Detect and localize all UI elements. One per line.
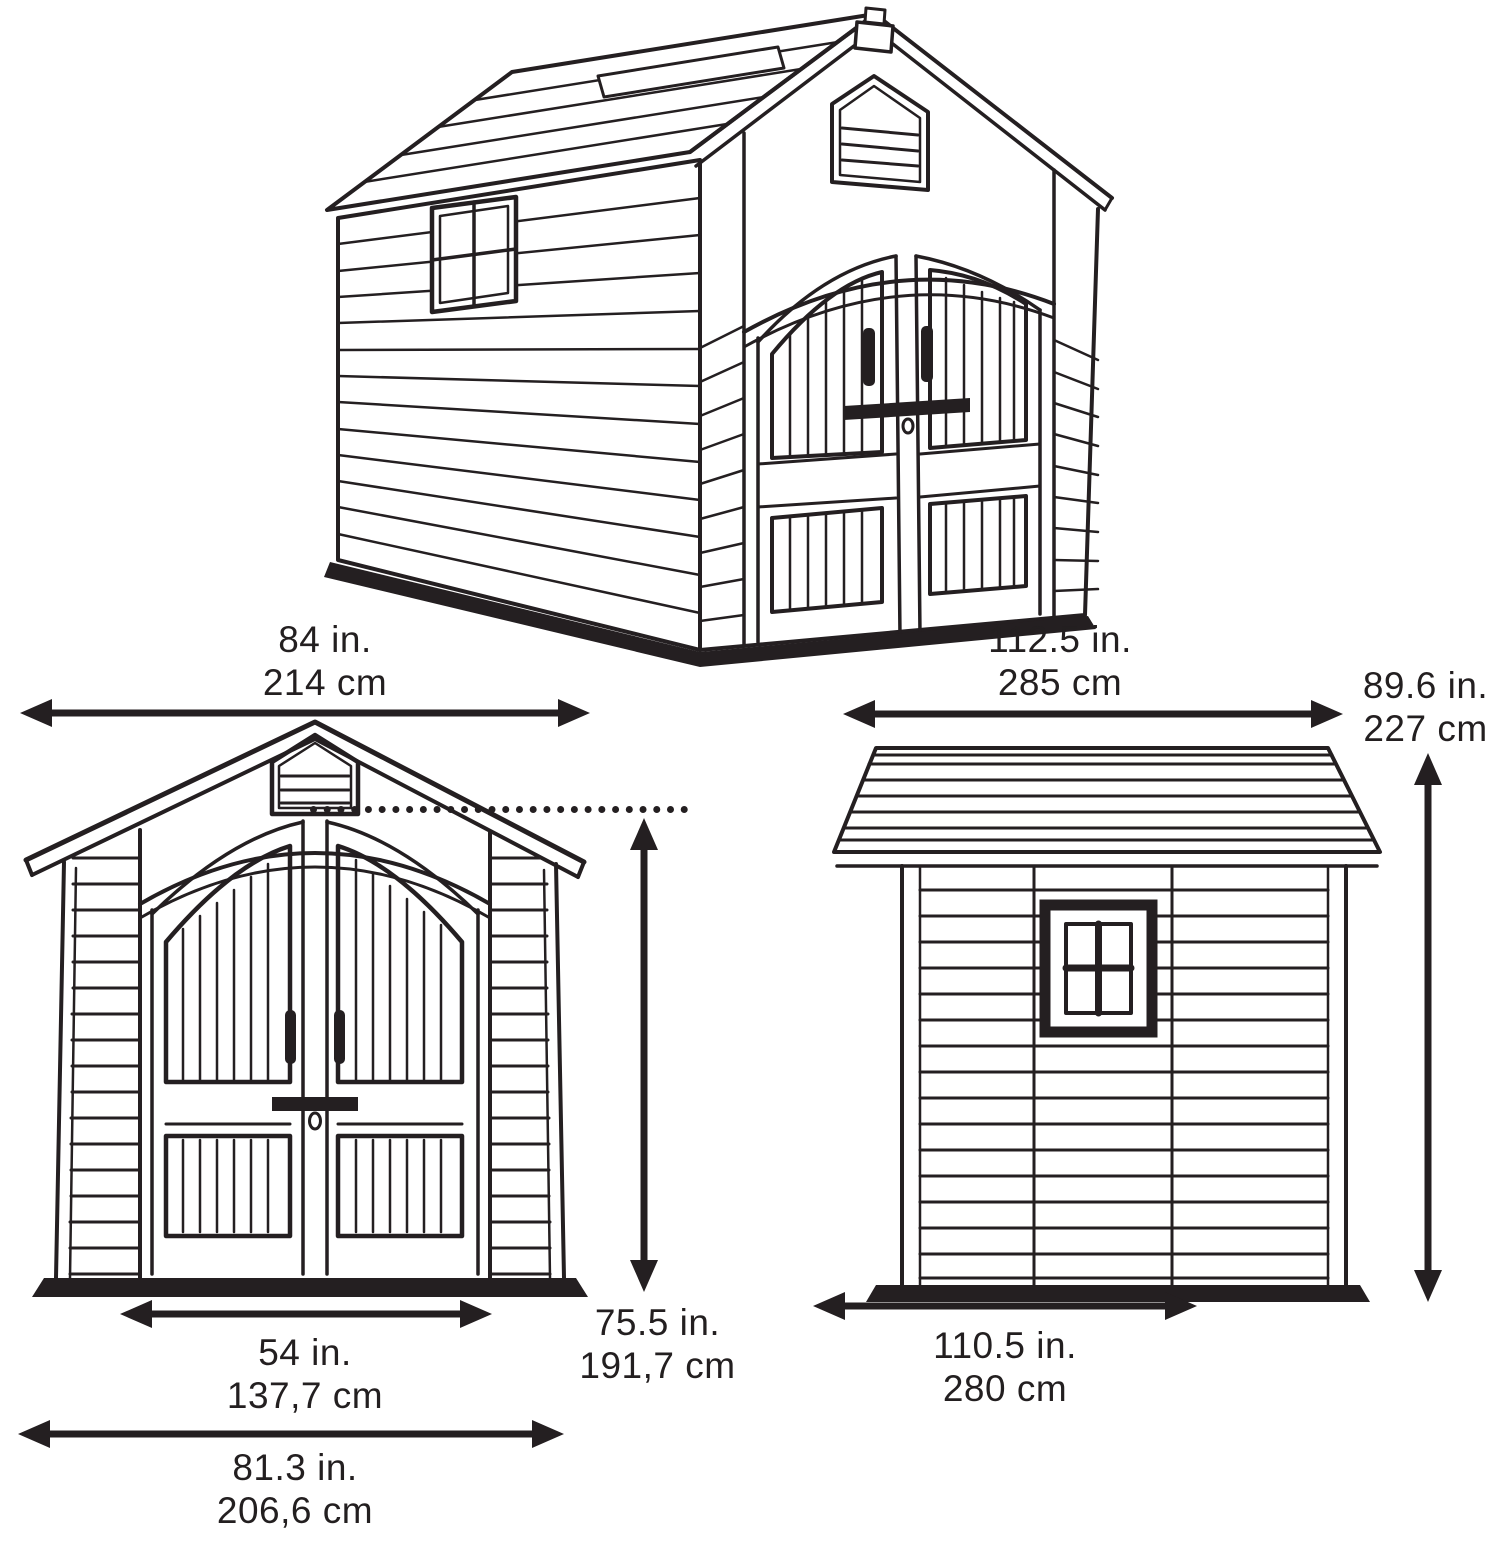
dimension-label-door-height: 75.5 in. 191,7 cm	[565, 1301, 750, 1387]
depth-inches: 112.5 in.	[915, 618, 1205, 661]
side-length-arrow	[813, 1291, 1197, 1321]
door-height-inches: 75.5 in.	[565, 1301, 750, 1344]
side-window-3d	[432, 197, 516, 312]
door-handle-right-3d	[921, 326, 933, 382]
front-left-siding	[70, 858, 140, 1274]
dimension-label-side-length: 110.5 in. 280 cm	[860, 1324, 1150, 1410]
peak-height-arrow	[1413, 753, 1443, 1302]
side-window	[1045, 905, 1152, 1032]
door-width-cm: 137,7 cm	[160, 1374, 450, 1417]
dimension-label-base-width: 81.3 in. 206,6 cm	[150, 1446, 440, 1532]
base-width-cm: 206,6 cm	[150, 1489, 440, 1532]
front-right-siding	[490, 858, 550, 1274]
base-width-inches: 81.3 in.	[150, 1446, 440, 1489]
door-handle-left	[285, 1010, 296, 1064]
door-height-reference-line	[310, 806, 688, 813]
side-view-drawing	[828, 740, 1388, 1310]
door-latch	[272, 1097, 358, 1111]
peak-height-cm: 227 cm	[1340, 707, 1511, 750]
dimension-label-front-width: 84 in. 214 cm	[180, 618, 470, 704]
depth-cm: 285 cm	[915, 661, 1205, 704]
door-handle-left-3d	[863, 328, 875, 386]
door-handle-right	[334, 1010, 345, 1064]
door-height-cm: 191,7 cm	[565, 1344, 750, 1387]
dimension-label-depth: 112.5 in. 285 cm	[915, 618, 1205, 704]
perspective-view-drawing	[308, 2, 1198, 662]
shed-dimension-diagram: 84 in. 214 cm 112.5 in. 285 cm 89.6 in. …	[0, 0, 1511, 1543]
door-height-arrow	[629, 818, 659, 1292]
peak-height-inches: 89.6 in.	[1340, 664, 1511, 707]
door-width-arrow	[120, 1299, 492, 1329]
dimension-label-peak-height: 89.6 in. 227 cm	[1340, 664, 1511, 750]
door-width-inches: 54 in.	[160, 1331, 450, 1374]
side-length-inches: 110.5 in.	[860, 1324, 1150, 1367]
front-view-drawing	[20, 712, 600, 1302]
front-width-inches: 84 in.	[180, 618, 470, 661]
base-width-arrow	[18, 1419, 564, 1449]
front-width-cm: 214 cm	[180, 661, 470, 704]
dimension-label-door-width: 54 in. 137,7 cm	[160, 1331, 450, 1417]
gable-vent-front	[272, 735, 358, 814]
side-length-cm: 280 cm	[860, 1367, 1150, 1410]
